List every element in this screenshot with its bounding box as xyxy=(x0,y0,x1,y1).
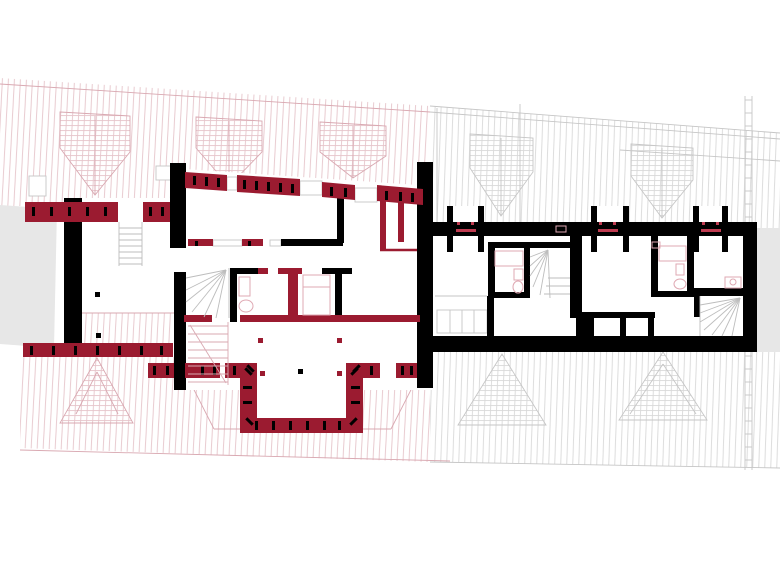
floor-plan-drawing xyxy=(0,0,780,578)
terrace-hatch xyxy=(82,313,174,343)
floor-plan-viewer xyxy=(0,0,780,578)
